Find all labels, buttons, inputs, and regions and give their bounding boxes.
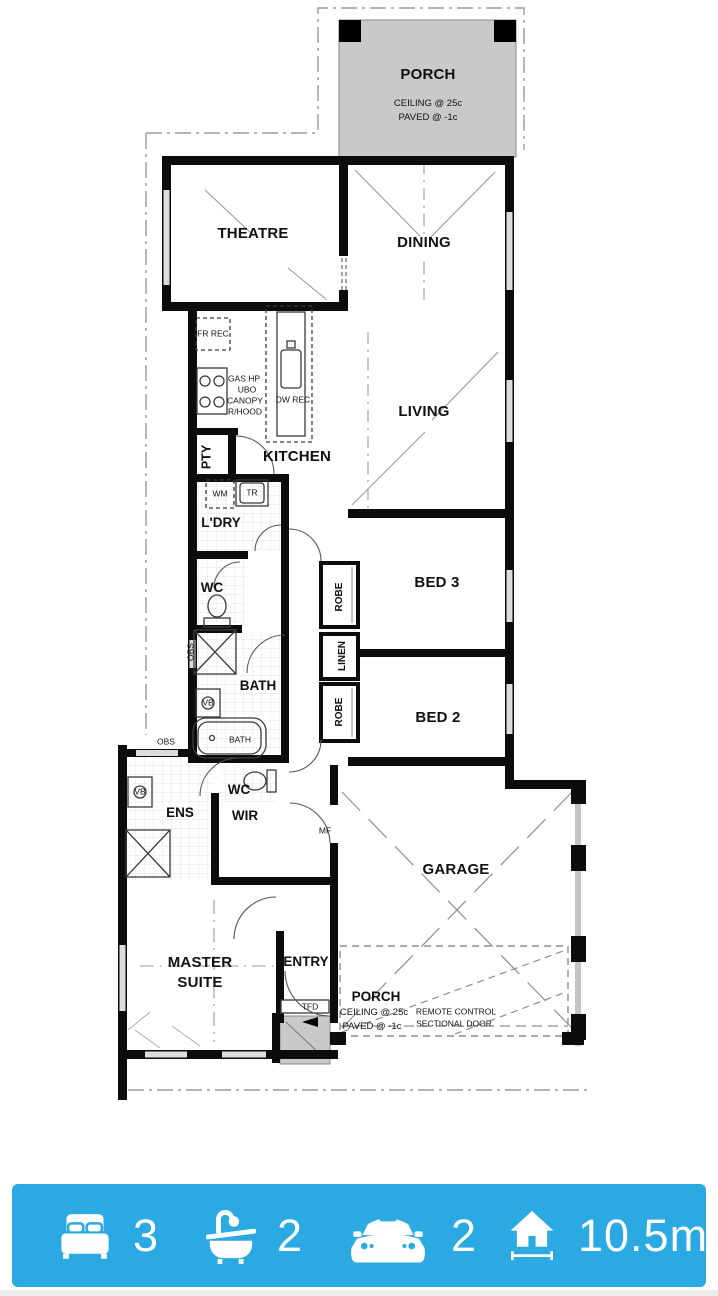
bathtub-note: BATH (229, 736, 251, 745)
room-label-bed3: BED 3 (414, 575, 459, 591)
frontage-stat: 10.5m (507, 1184, 708, 1287)
room-label-porch-bottom: PORCH (352, 990, 401, 1004)
meter-box-note: MF (319, 827, 331, 836)
sectional-door-note-line2: SECTIONAL DOOR (416, 1020, 492, 1029)
room-label-ens: ENS (166, 806, 194, 820)
frontage-width: 10.5m (578, 1210, 708, 1262)
room-label-living: LIVING (398, 404, 449, 420)
robe-label-top: ROBE (335, 583, 346, 612)
summary-bar: 3 2 2 (12, 1184, 706, 1287)
bedrooms-stat: 3 (58, 1184, 159, 1287)
porch-bottom-ceiling-note: CEILING @ 25c (340, 1008, 408, 1018)
room-label-master: MASTER SUITE (144, 953, 256, 994)
room-label-pantry: PTY (200, 445, 213, 469)
obscure-glass-note-bottom: OBS (157, 738, 175, 747)
room-label-kitchen: KITCHEN (263, 449, 331, 465)
bed-icon (58, 1212, 112, 1260)
room-label-wir: WIR (232, 809, 258, 823)
bed-count: 3 (133, 1210, 159, 1262)
house-width-icon (507, 1208, 557, 1264)
vanity-basin-note-ens: VB (134, 788, 145, 797)
under-bench-oven-note: UBO (238, 386, 256, 395)
page-bottom-strip (0, 1290, 718, 1296)
sectional-door-note-line1: REMOTE CONTROL (416, 1008, 496, 1017)
vanity-basin-note-bath: VB (202, 699, 213, 708)
room-label-bed2: BED 2 (415, 710, 460, 726)
room-label-theatre: THEATRE (217, 226, 288, 242)
front-door-note: TFD (302, 1003, 319, 1012)
rangehood-note: R/HOOD (228, 408, 262, 417)
porch-top-ceiling-note: CEILING @ 25c (394, 99, 462, 109)
room-label-garage: GARAGE (422, 862, 489, 878)
gas-hotplate-note: GAS HP (228, 375, 260, 384)
bath-count: 2 (277, 1210, 303, 1262)
room-label-laundry: L'DRY (201, 516, 240, 530)
trough-note: TR (246, 489, 257, 498)
washing-machine-note: WM (212, 490, 227, 499)
bath-icon (206, 1208, 256, 1264)
floor-plan: PORCH CEILING @ 25c PAVED @ -1c THEATRE … (0, 0, 718, 1160)
linen-label: LINEN (338, 641, 349, 671)
car-count: 2 (451, 1210, 477, 1262)
room-label-ens-wc: WC (228, 783, 251, 797)
room-label-bath: BATH (240, 679, 277, 693)
car-icon (346, 1207, 430, 1265)
porch-top-paved-note: PAVED @ -1c (399, 113, 458, 123)
floor-plan-page: PORCH CEILING @ 25c PAVED @ -1c THEATRE … (0, 0, 718, 1296)
bathrooms-stat: 2 (206, 1184, 303, 1287)
robe-label-bottom: ROBE (335, 698, 346, 727)
room-label-wc: WC (201, 581, 224, 595)
room-label-entry: ENTRY (283, 955, 328, 969)
car-spaces-stat: 2 (346, 1184, 477, 1287)
room-label-dining: DINING (397, 235, 451, 251)
dishwasher-recess-note: DW REC (276, 396, 310, 405)
canopy-note: CANOPY (227, 397, 263, 406)
obscure-glass-note-left: OBS (187, 643, 196, 661)
porch-bottom-paved-note: PAVED @ -1c (343, 1022, 402, 1032)
floor-plan-drawing (0, 0, 718, 1160)
fridge-recess-note: FR REC (197, 330, 229, 339)
room-label-porch-top: PORCH (400, 67, 455, 83)
